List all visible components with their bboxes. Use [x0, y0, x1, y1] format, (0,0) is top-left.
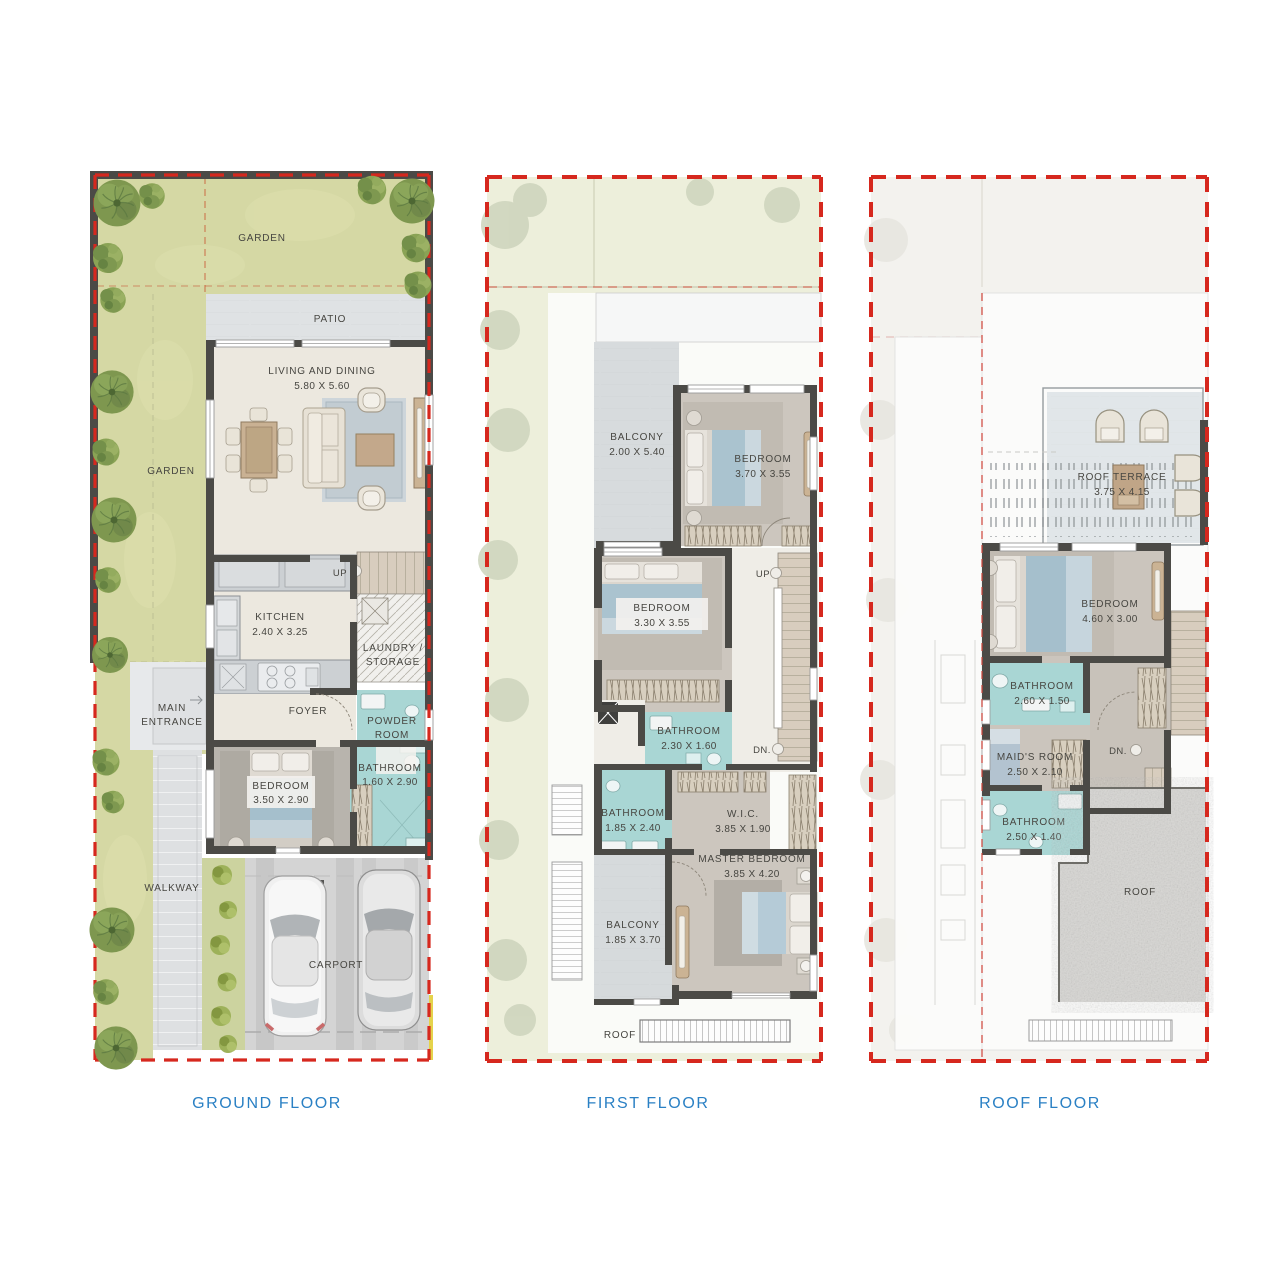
svg-text:ROOF FLOOR: ROOF FLOOR: [979, 1095, 1101, 1112]
svg-text:GARDEN: GARDEN: [238, 233, 286, 244]
svg-text:1.60 X 2.90: 1.60 X 2.90: [362, 777, 418, 788]
svg-text:BEDROOM: BEDROOM: [734, 454, 791, 465]
svg-text:1.85 X 2.40: 1.85 X 2.40: [605, 823, 661, 834]
svg-text:WALKWAY: WALKWAY: [144, 883, 199, 894]
svg-text:2.50 X 1.40: 2.50 X 1.40: [1006, 832, 1062, 843]
svg-text:GARDEN: GARDEN: [147, 466, 195, 477]
svg-text:STORAGE: STORAGE: [366, 657, 420, 668]
svg-text:2.60 X 1.50: 2.60 X 1.50: [1014, 696, 1070, 707]
svg-text:3.85 X 1.90: 3.85 X 1.90: [715, 824, 771, 835]
svg-text:UP: UP: [756, 569, 770, 580]
svg-text:2.50 X 2.10: 2.50 X 2.10: [1007, 767, 1063, 778]
svg-text:FIRST FLOOR: FIRST FLOOR: [586, 1095, 709, 1112]
svg-text:BEDROOM: BEDROOM: [1081, 599, 1138, 610]
svg-text:CARPORT: CARPORT: [309, 960, 363, 971]
svg-text:BEDROOM: BEDROOM: [633, 603, 690, 614]
svg-text:GROUND FLOOR: GROUND FLOOR: [192, 1095, 342, 1112]
svg-text:3.50 X 2.90: 3.50 X 2.90: [253, 795, 309, 806]
svg-text:LIVING AND DINING: LIVING AND DINING: [268, 366, 376, 377]
svg-text:BATHROOM: BATHROOM: [1002, 817, 1065, 828]
svg-text:POWDER: POWDER: [367, 716, 417, 727]
svg-text:KITCHEN: KITCHEN: [255, 612, 305, 623]
svg-text:3.70 X 3.55: 3.70 X 3.55: [735, 469, 791, 480]
svg-text:PATIO: PATIO: [314, 314, 347, 325]
svg-text:1.85 X 3.70: 1.85 X 3.70: [605, 935, 661, 946]
svg-text:UP: UP: [333, 568, 347, 579]
svg-text:5.80 X 5.60: 5.80 X 5.60: [294, 381, 350, 392]
svg-text:3.85 X 4.20: 3.85 X 4.20: [724, 869, 780, 880]
svg-text:ROOM: ROOM: [375, 730, 409, 741]
svg-text:MAID'S ROOM: MAID'S ROOM: [997, 752, 1073, 763]
svg-text:MAIN: MAIN: [158, 703, 186, 714]
svg-text:BEDROOM: BEDROOM: [252, 781, 309, 792]
svg-text:2.30 X 1.60: 2.30 X 1.60: [661, 741, 717, 752]
svg-text:4.60 X 3.00: 4.60 X 3.00: [1082, 614, 1138, 625]
svg-text:2.40 X 3.25: 2.40 X 3.25: [252, 627, 308, 638]
svg-text:DN.: DN.: [753, 745, 771, 756]
svg-text:BALCONY: BALCONY: [610, 432, 663, 443]
svg-text:3.30 X 3.55: 3.30 X 3.55: [634, 618, 690, 629]
svg-text:FOYER: FOYER: [289, 706, 327, 717]
svg-text:MASTER BEDROOM: MASTER BEDROOM: [698, 854, 805, 865]
svg-text:ROOF: ROOF: [604, 1030, 636, 1041]
svg-text:BATHROOM: BATHROOM: [1010, 681, 1073, 692]
svg-text:ROOF: ROOF: [1124, 887, 1156, 898]
svg-text:BATHROOM: BATHROOM: [601, 808, 664, 819]
svg-text:3.75 X 4.15: 3.75 X 4.15: [1094, 487, 1150, 498]
svg-text:ROOF TERRACE: ROOF TERRACE: [1078, 472, 1167, 483]
svg-text:BATHROOM: BATHROOM: [358, 763, 421, 774]
svg-text:BALCONY: BALCONY: [606, 920, 659, 931]
svg-text:W.I.C.: W.I.C.: [727, 809, 759, 820]
svg-text:2.00 X 5.40: 2.00 X 5.40: [609, 447, 665, 458]
svg-text:ENTRANCE: ENTRANCE: [141, 717, 202, 728]
svg-text:DN.: DN.: [1109, 746, 1127, 757]
svg-text:BATHROOM: BATHROOM: [657, 726, 720, 737]
svg-text:LAUNDRY /: LAUNDRY /: [363, 643, 423, 654]
